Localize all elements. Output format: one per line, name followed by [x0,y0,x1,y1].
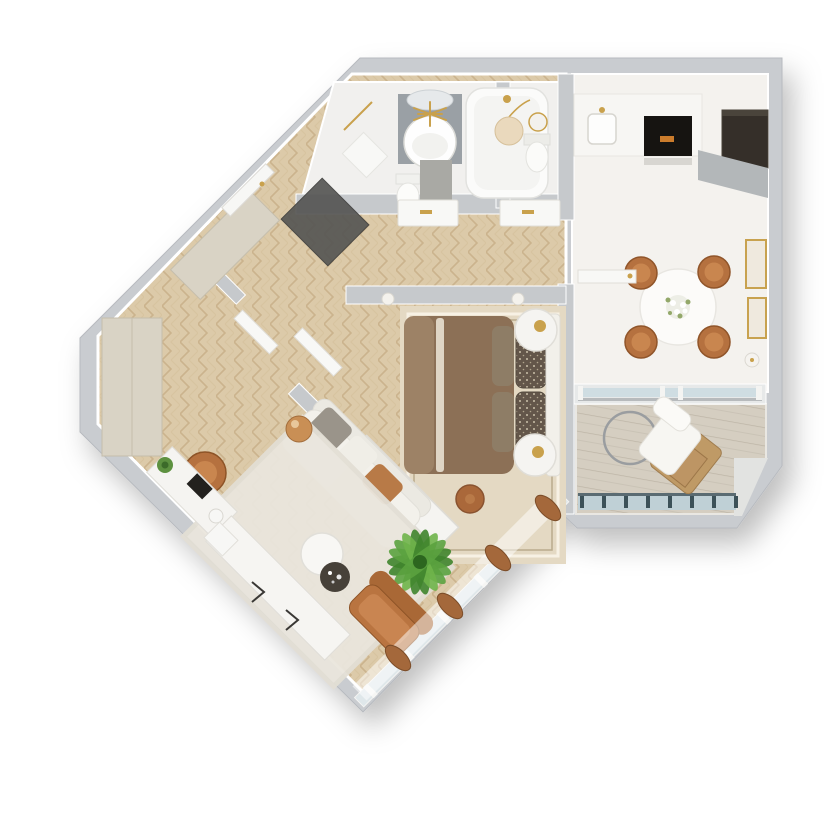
kitchen-balcony-glass-door [578,388,762,397]
coffee-table-dark [320,562,350,592]
coffee-table-dark-decor-3 [332,581,335,584]
balcony-mullion-2 [602,496,606,508]
fridge-top-highlight [722,110,768,116]
balcony-rail [578,493,736,496]
cooktop-display [660,136,674,142]
coffee-table-dark-decor-2 [337,575,342,580]
oven-front [644,158,692,165]
kitchen-door-handle [628,274,633,279]
wall-kitchen-left-upper [558,74,574,220]
wc-door-handle [522,210,534,214]
door-mullion-3 [678,386,683,400]
wall-bedroom-top [346,286,566,304]
wc-sink [529,113,547,131]
floorplan-image [0,0,828,828]
dining-chair-4-seat [705,333,724,352]
bedroom-pouf-stitch [465,494,475,504]
dining-chair-2-seat [705,263,724,282]
palm-core [413,555,427,569]
balcony-mullion-5 [668,496,672,508]
bed-pillow-taupe-2 [492,392,514,452]
door-mullion-4 [756,386,762,400]
dining-chair-3-seat [632,333,651,352]
bathroom-door-handle [420,210,432,214]
balcony-mullion-1 [580,496,584,508]
wall-art-2 [748,298,766,338]
desk-plant-core [162,462,169,469]
bouquet-floret-4 [683,309,688,314]
wall-sconce-kitchen-dot [750,358,754,362]
kitchen-tap [599,107,605,113]
floorplan-svg [0,0,828,828]
bath-sink-basin [412,133,448,159]
bouquet-green-3 [678,314,683,319]
bed-sheet-edge [436,318,444,472]
wc-toilet-bowl [526,142,548,172]
bouquet-floret-2 [680,302,686,308]
bath-mat [420,160,452,202]
bouquet-floret-1 [670,300,676,306]
wall-art-1 [746,240,766,288]
nightstand-top-lamp [534,320,546,332]
bed-pillow-taupe-1 [492,326,514,386]
nightstand-bottom-lamp [532,446,544,458]
bouquet-green-4 [668,311,672,315]
balcony-mullion-7 [712,496,716,508]
entry-door-handle [260,182,265,187]
bathtub-faucet [503,95,511,103]
kitchen-sink [588,114,616,144]
balcony-mullion-8 [734,496,738,508]
bedroom-sconce-left [382,293,394,305]
coffee-table-dark-decor-1 [328,571,332,575]
floor-lamp-gloss [291,420,299,428]
balcony-mullion-3 [624,496,628,508]
door-mullion-1 [578,386,583,400]
balcony-mullion-6 [690,496,694,508]
bedroom-sconce-right [512,293,524,305]
balcony-mullion-4 [646,496,650,508]
kitchen-door-leaf [578,270,636,283]
floor-lamp-copper-sphere [286,416,312,442]
bouquet-green-2 [686,300,691,305]
pendant-lamp [495,117,523,145]
desk-lamp [209,509,223,523]
bed-duvet-fold [404,316,434,474]
bouquet-green-1 [666,298,671,303]
